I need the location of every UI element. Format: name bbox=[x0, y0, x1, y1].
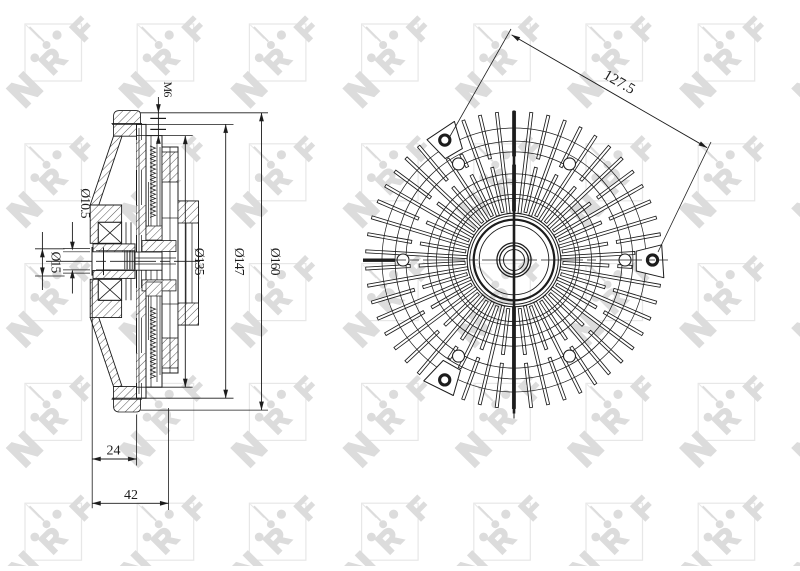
svg-text:Ø160: Ø160 bbox=[268, 248, 283, 276]
svg-text:M6: M6 bbox=[161, 81, 175, 97]
svg-text:Ø10.5: Ø10.5 bbox=[78, 188, 93, 218]
svg-text:Ø147: Ø147 bbox=[232, 248, 247, 276]
svg-text:24: 24 bbox=[107, 444, 121, 459]
svg-text:42: 42 bbox=[124, 488, 138, 503]
svg-text:Ø135: Ø135 bbox=[192, 248, 207, 276]
svg-text:Ø15: Ø15 bbox=[49, 252, 64, 274]
